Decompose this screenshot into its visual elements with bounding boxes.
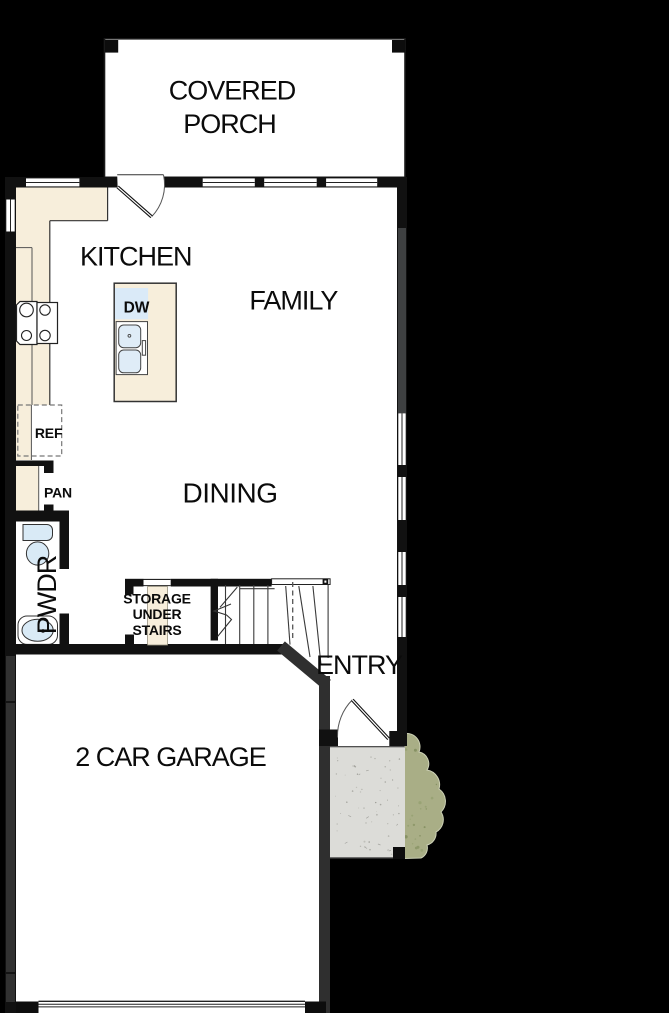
svg-text:PAN: PAN xyxy=(44,485,72,501)
svg-text:PORCH: PORCH xyxy=(183,109,276,139)
svg-text:STAIRS: STAIRS xyxy=(132,622,181,638)
svg-text:REF: REF xyxy=(35,425,63,441)
svg-text:COVERED: COVERED xyxy=(169,76,296,106)
svg-text:UNDER: UNDER xyxy=(133,606,182,622)
svg-text:KITCHEN: KITCHEN xyxy=(80,242,192,272)
svg-text:ENTRY: ENTRY xyxy=(316,650,403,680)
svg-text:DINING: DINING xyxy=(183,478,278,509)
svg-text:DW: DW xyxy=(124,300,150,317)
svg-text:PWDR: PWDR xyxy=(32,555,62,634)
svg-text:2 CAR GARAGE: 2 CAR GARAGE xyxy=(75,742,266,772)
svg-text:STORAGE: STORAGE xyxy=(123,591,191,607)
svg-text:FAMILY: FAMILY xyxy=(249,286,338,316)
